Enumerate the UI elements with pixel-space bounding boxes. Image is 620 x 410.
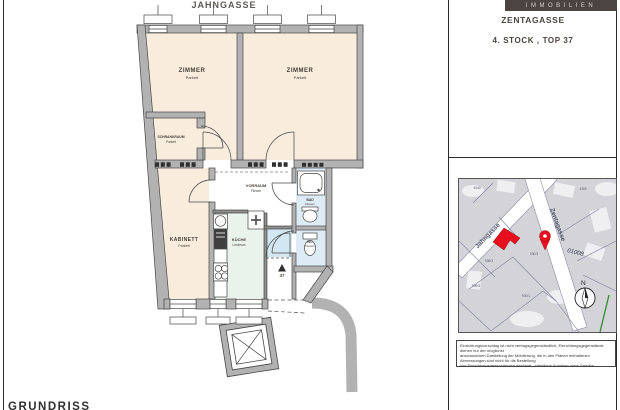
landing-dashed-line2	[268, 311, 305, 313]
wall-bottom-a	[164, 299, 170, 309]
label-vorraum-floor: Fliesen	[251, 189, 262, 193]
window	[236, 299, 262, 324]
shaft-marker	[248, 211, 264, 229]
elevator-shaft	[219, 317, 278, 376]
bathtub-icon	[298, 171, 325, 195]
label-schrankraum: SCHRANKRAUM	[157, 135, 184, 139]
floorplan-drawing: ZIMMER Parkett ZIMMER Parkett SCHRANKRAU…	[0, 0, 448, 410]
parcel-number: 4040	[473, 186, 480, 190]
parcel-number: 4365	[579, 187, 586, 191]
window	[308, 5, 336, 33]
window	[200, 5, 228, 33]
wall-bath-left-a	[292, 168, 296, 183]
wall-kabinett-a	[209, 168, 215, 180]
wall-bottom-b	[196, 299, 210, 309]
wall-schrank-top	[146, 112, 205, 118]
kitchen-sink-icon	[214, 214, 228, 229]
label-kueche: KÜCHE	[232, 237, 247, 242]
wall-right	[357, 25, 363, 168]
disclaimer-line: Einrichtungsvorschlag ist nicht vertrags…	[460, 343, 612, 353]
cooktop-icon	[214, 263, 228, 281]
label-zimmer1: ZIMMER	[179, 68, 206, 74]
label-kabinett: KABINETT	[170, 237, 198, 243]
label-zimmer2: ZIMMER	[287, 68, 314, 74]
disclaimer-box: Einrichtungsvorschlag ist nicht vertrags…	[456, 340, 616, 367]
brand-label: IMMOBILIEN	[526, 3, 596, 9]
compass-n-label: N	[581, 280, 586, 287]
room-zimmer-fill	[145, 33, 357, 160]
site-map-drawing: Jahngasse Zentagasse 01008 4040 4365 930…	[459, 179, 616, 332]
brand-logo-bar: IMMOBILIEN	[505, 0, 617, 11]
wall-bath-left-b	[292, 203, 296, 233]
sheet-caption: GRUNDRISS	[8, 401, 91, 410]
floorplan-sheet: JAHNGASSE IMMOBILIEN ZENTAGASSE 4. STOCK…	[0, 0, 620, 410]
stove-icon	[214, 229, 227, 249]
label-schrankraum-floor: Parkett	[166, 140, 176, 144]
wall-zimmer-divider	[237, 33, 243, 160]
parcel-number: 939/3	[472, 284, 480, 288]
parcel-number: 936/3	[485, 259, 493, 263]
parcel-number: 930/3	[530, 252, 538, 256]
wall-entry-top	[264, 226, 292, 229]
window	[254, 5, 282, 33]
label-zimmer1-floor: Parkett	[186, 75, 200, 80]
label-entrance-number: 37	[279, 273, 285, 278]
washbasin-icon	[302, 207, 318, 222]
disclaimer-line: anschaulichen Darstellung der Möblierung…	[460, 353, 612, 363]
wall-schrank-right-b	[197, 148, 205, 160]
wall-bad-wc-divider	[296, 226, 326, 230]
label-zimmer2-floor: Parkett	[294, 75, 308, 80]
wall-bottom-c	[226, 299, 236, 309]
label-bad-floor: Fliesen	[305, 202, 315, 206]
panel-divider	[448, 0, 449, 410]
window	[170, 299, 196, 324]
kitchen-counter	[214, 249, 227, 263]
right-panel-divider	[448, 157, 617, 158]
wall-bath-left-c	[292, 253, 296, 299]
site-map: Jahngasse Zentagasse 01008 4040 4365 930…	[458, 178, 617, 333]
disclaimer-line: von Einrichtungsgegenständen geeignet - …	[460, 363, 612, 367]
street-label-right: ZENTAGASSE	[449, 15, 617, 25]
label-kabinett-floor: Parkett	[178, 244, 189, 248]
label-kueche-floor: Linoleum	[233, 243, 246, 247]
wall-kueche-top	[213, 210, 248, 213]
label-vorraum: VORRAUM	[246, 183, 267, 188]
windows-bottom	[170, 299, 262, 324]
parcel-number: 930/1	[522, 294, 530, 298]
unit-label: 4. STOCK , TOP 37	[449, 36, 617, 45]
wall-bottom-d	[262, 299, 268, 309]
wall-bath-right	[326, 168, 332, 272]
stair-curved-wall	[312, 303, 352, 392]
label-wc-floor: Fliesen	[305, 244, 315, 248]
stairwell	[219, 300, 352, 392]
kitchen-counter2	[214, 281, 227, 297]
